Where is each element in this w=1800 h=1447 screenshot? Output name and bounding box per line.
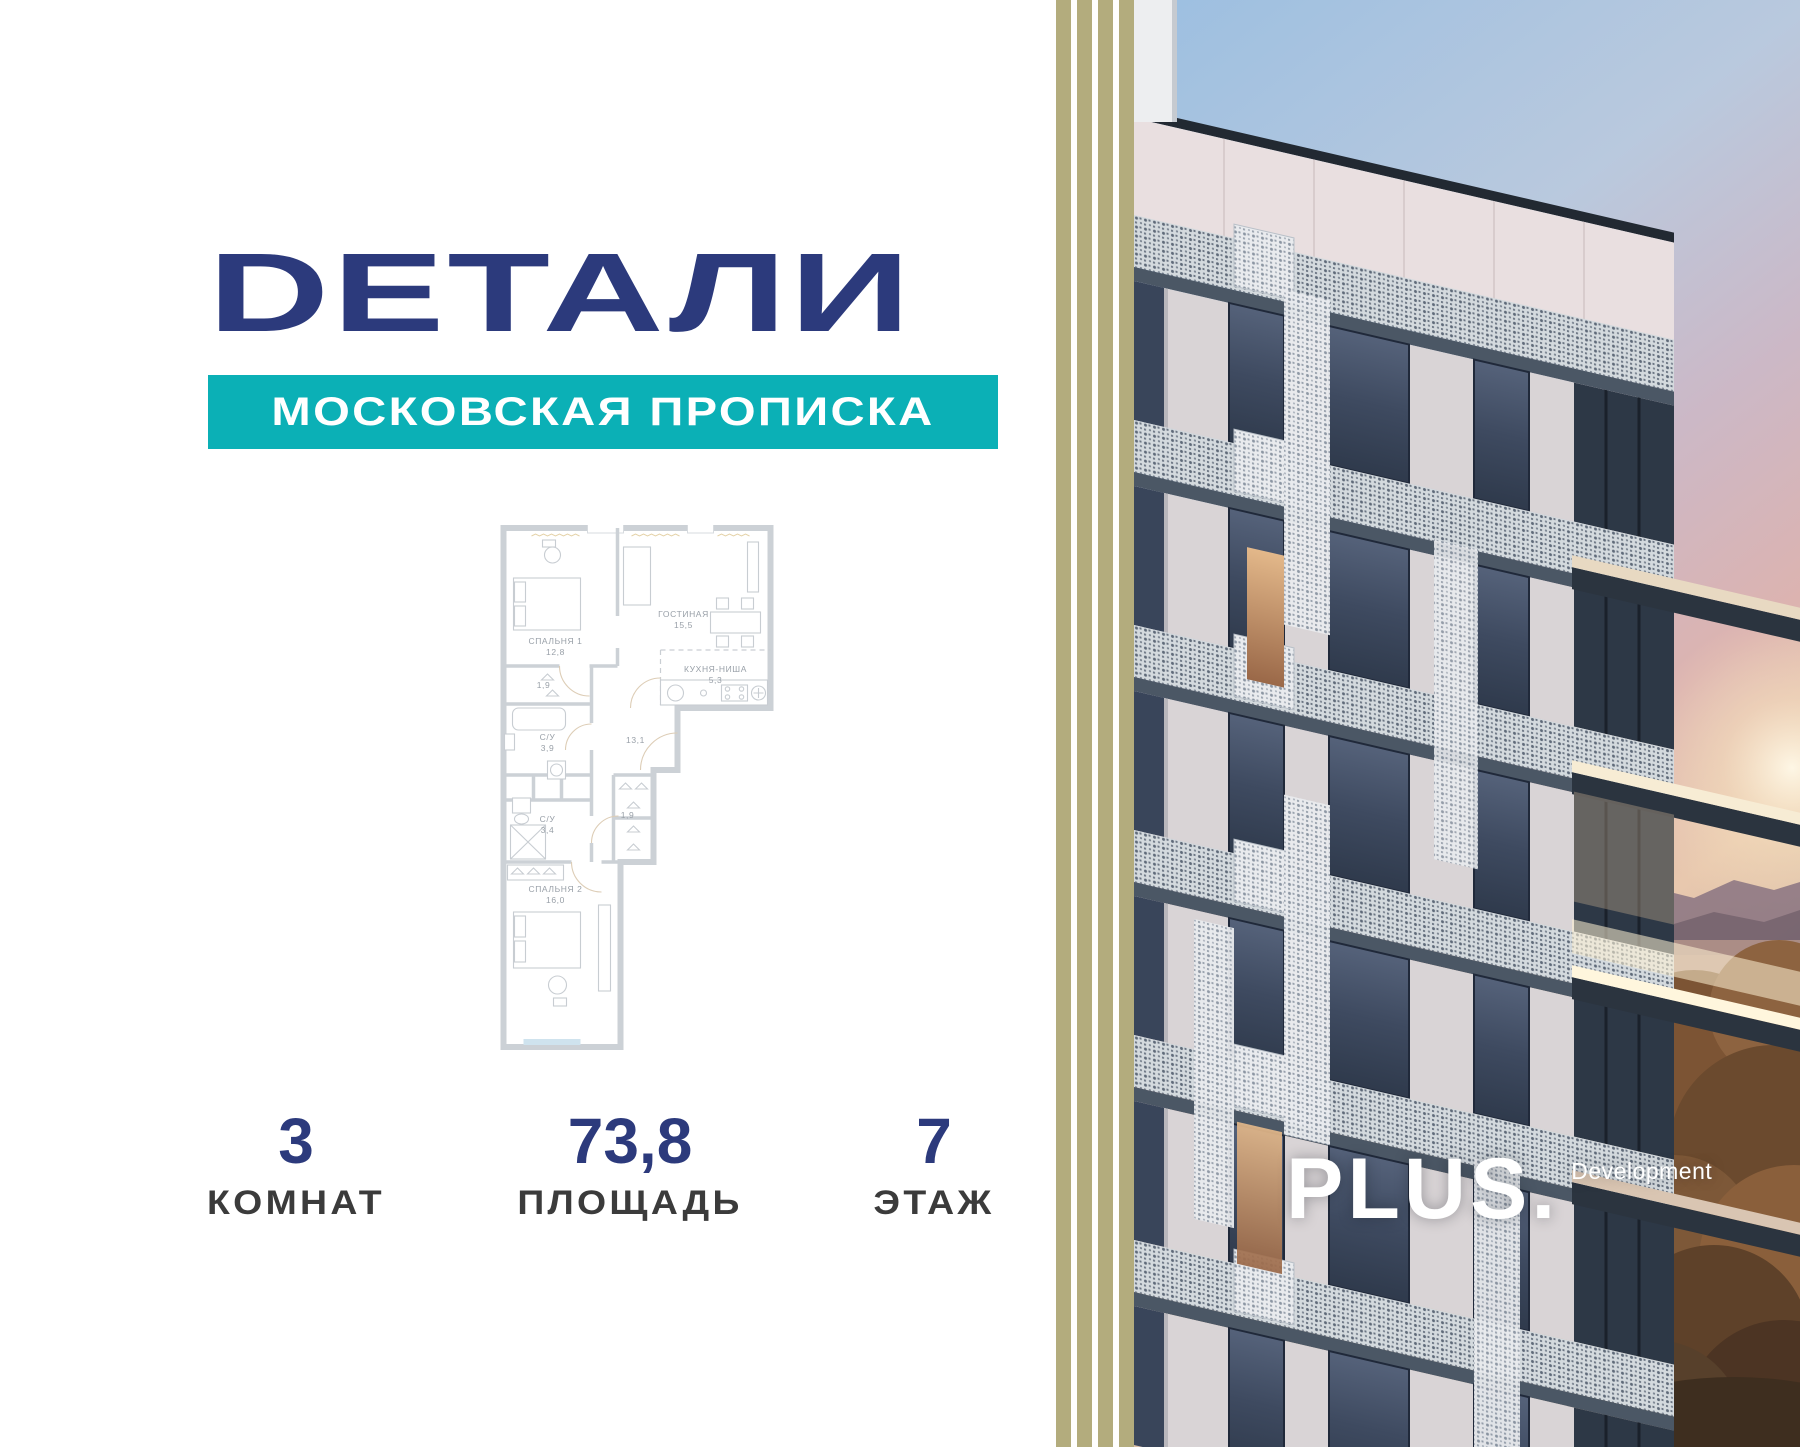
subtitle-banner: МОСКОВСКАЯ ПРОПИСКА — [208, 375, 998, 449]
stat-rooms: 3 КОМНАТ — [166, 1108, 426, 1220]
corner-pillar — [1134, 0, 1176, 122]
room-label: С/У — [540, 732, 556, 742]
divider-stripe — [1098, 0, 1113, 1447]
room-label: СПАЛЬНЯ 2 — [528, 884, 582, 894]
developer-logo-suffix: Development — [1571, 1160, 1712, 1183]
room-area: 15,5 — [674, 620, 693, 630]
real-estate-flyer: DЕТАЛИ МОСКОВСКАЯ ПРОПИСКА — [0, 0, 1800, 1447]
room-label: КУХНЯ-НИША — [684, 664, 747, 674]
stat-area: 73,8 ПЛОЩАДЬ — [500, 1108, 760, 1220]
divider-stripe — [1056, 0, 1071, 1447]
stats-row: 3 КОМНАТ 73,8 ПЛОЩАДЬ 7 ЭТАЖ — [0, 1108, 1056, 1228]
room-area: 3,9 — [541, 743, 555, 753]
stat-floor: 7 ЭТАЖ — [804, 1108, 1064, 1220]
floor-plan: СПАЛЬНЯ 1 12,8 ГОСТИНАЯ 15,5 КУХНЯ-НИША … — [500, 525, 774, 1050]
room-area: 1,9 — [621, 810, 635, 820]
lit-window — [1247, 547, 1284, 688]
brand-logo: DЕТАЛИ — [208, 247, 1008, 339]
stat-area-label: ПЛОЩАДЬ — [487, 1186, 773, 1220]
developer-logo: PLUS. Development — [1286, 1146, 1712, 1232]
room-area: 12,8 — [546, 647, 565, 657]
stat-floor-label: ЭТАЖ — [791, 1186, 1077, 1220]
stat-area-value: 73,8 — [500, 1108, 760, 1174]
info-panel: DЕТАЛИ МОСКОВСКАЯ ПРОПИСКА — [0, 0, 1056, 1447]
divider-stripe — [1119, 0, 1134, 1447]
lit-window — [1237, 1122, 1282, 1274]
divider-stripe — [1077, 0, 1092, 1447]
room-label: С/У — [540, 814, 556, 824]
stat-rooms-value: 3 — [166, 1108, 426, 1174]
room-label: СПАЛЬНЯ 1 — [528, 636, 582, 646]
floor-plan-drawing: СПАЛЬНЯ 1 12,8 ГОСТИНАЯ 15,5 КУХНЯ-НИША … — [500, 525, 774, 1050]
room-area: 5,3 — [709, 675, 723, 685]
room-label: ГОСТИНАЯ — [658, 609, 709, 619]
corner-pillar-edge — [1172, 0, 1177, 122]
room-area: 1,9 — [537, 680, 551, 690]
room-area: 16,0 — [546, 895, 565, 905]
sunset-reflection — [1574, 792, 1674, 925]
building-photo: PLUS. Development — [1134, 0, 1800, 1447]
stat-rooms-label: КОМНАТ — [153, 1186, 439, 1220]
developer-logo-text: PLUS. — [1286, 1146, 1559, 1232]
plan-window-sill — [524, 1039, 581, 1045]
room-area: 13,1 — [626, 735, 645, 745]
subtitle-banner-text: МОСКОВСКАЯ ПРОПИСКА — [271, 390, 934, 435]
stat-floor-value: 7 — [804, 1108, 1064, 1174]
divider-stripes — [1056, 0, 1134, 1447]
room-area: 3,4 — [541, 825, 555, 835]
